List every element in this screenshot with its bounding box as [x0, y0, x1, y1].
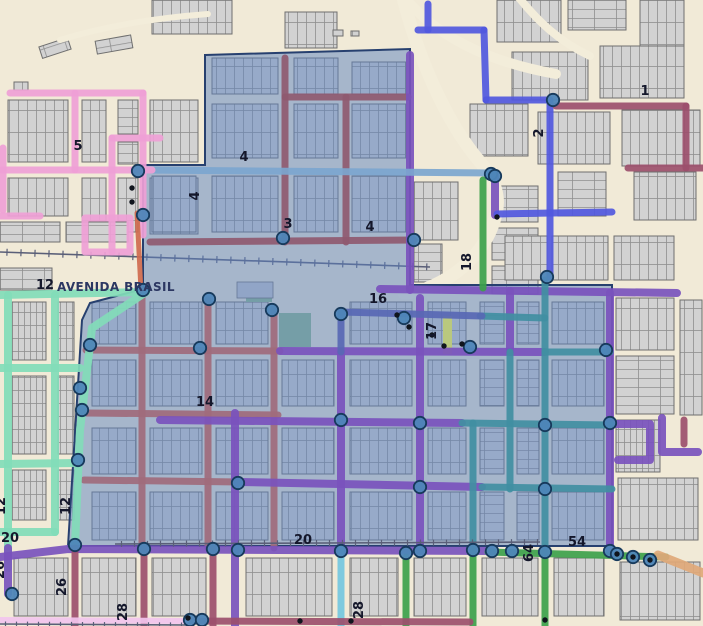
route-node[interactable]: [84, 339, 96, 351]
route-node[interactable]: [232, 477, 244, 489]
city-block: [66, 222, 128, 242]
route-purple-20-segment[interactable]: [280, 351, 545, 352]
route-node[interactable]: [76, 404, 88, 416]
stop-marker: [459, 341, 464, 346]
city-block: [568, 0, 626, 30]
route-node[interactable]: [138, 543, 150, 555]
route-node[interactable]: [232, 544, 244, 556]
route-node[interactable]: [277, 232, 289, 244]
route-number-label: 28: [352, 601, 367, 619]
route-node[interactable]: [398, 312, 410, 324]
route-number-label: 16: [369, 292, 387, 307]
route-node[interactable]: [414, 481, 426, 493]
city-block: [554, 558, 604, 616]
route-number-label: 28: [116, 603, 131, 621]
city-block: [616, 298, 674, 350]
route-rose-14-segment[interactable]: [86, 350, 280, 351]
stop-marker: [297, 618, 302, 623]
stop-marker: [129, 185, 134, 190]
route-mint-12-segment[interactable]: [0, 463, 78, 464]
route-teal-grid-segment[interactable]: [480, 316, 545, 318]
route-node[interactable]: [414, 545, 426, 557]
city-block: [8, 178, 68, 216]
city-block: [333, 30, 343, 36]
route-node[interactable]: [539, 419, 551, 431]
city-block: [12, 302, 46, 360]
stop-marker: [441, 343, 446, 348]
stop-marker: [406, 324, 411, 329]
route-number-label: 12: [0, 497, 9, 515]
route-node[interactable]: [467, 544, 479, 556]
stop-marker: [647, 557, 652, 562]
stop-marker: [542, 617, 547, 622]
route-node[interactable]: [207, 543, 219, 555]
route-node[interactable]: [489, 170, 501, 182]
route-number-label: 4: [188, 191, 203, 200]
route-number-label: 4: [365, 220, 374, 235]
city-block: [82, 100, 106, 162]
city-block: [8, 100, 68, 162]
route-node[interactable]: [600, 344, 612, 356]
route-number-label: 1: [640, 84, 649, 99]
stop-marker: [494, 214, 499, 219]
city-block: [58, 376, 74, 454]
city-block: [614, 236, 674, 280]
city-block: [12, 376, 46, 454]
route-number-label: 14: [196, 395, 214, 410]
route-node[interactable]: [414, 417, 426, 429]
route-node[interactable]: [539, 546, 551, 558]
city-block: [152, 558, 206, 616]
route-purple-20-segment[interactable]: [662, 418, 698, 452]
route-number-label: 4: [239, 150, 248, 165]
route-teal-grid-segment[interactable]: [462, 423, 612, 425]
route-node[interactable]: [604, 417, 616, 429]
city-block: [285, 12, 337, 48]
route-node[interactable]: [486, 545, 498, 557]
route-node[interactable]: [184, 614, 196, 626]
route-node[interactable]: [137, 209, 149, 221]
city-block: [680, 300, 702, 415]
route-maroon-1-26-28-segment[interactable]: [186, 621, 470, 622]
city-block: [351, 31, 359, 36]
route-node[interactable]: [408, 234, 420, 246]
route-node[interactable]: [194, 342, 206, 354]
route-node[interactable]: [72, 454, 84, 466]
city-block: [0, 222, 60, 242]
city-block: [118, 100, 138, 134]
city-block: [414, 558, 466, 616]
route-number-label: 26: [0, 561, 8, 579]
map-viewport[interactable]: 5444312121212181617142020262628285464AVE…: [0, 0, 703, 626]
route-number-label: 12: [36, 278, 54, 293]
route-number-label: 26: [55, 578, 70, 596]
city-block: [150, 100, 198, 162]
route-lightpink-segment[interactable]: [0, 620, 186, 621]
route-number-label: 54: [568, 535, 586, 550]
route-node[interactable]: [541, 271, 553, 283]
route-blue-2-segment[interactable]: [497, 212, 612, 214]
route-number-label: 5: [73, 139, 82, 154]
route-number-label: 2: [532, 128, 547, 137]
route-number-label: 20: [1, 531, 19, 546]
route-rose-14-segment[interactable]: [84, 480, 240, 482]
stop-marker: [614, 551, 619, 556]
route-node[interactable]: [335, 414, 347, 426]
route-number-label: 20: [294, 533, 312, 548]
route-node[interactable]: [196, 614, 208, 626]
stop-marker: [185, 615, 190, 620]
city-block: [616, 356, 674, 414]
map-canvas[interactable]: 5444312121212181617142020262628285464AVE…: [0, 0, 703, 626]
route-node[interactable]: [547, 94, 559, 106]
route-node[interactable]: [464, 341, 476, 353]
route-number-label: 17: [425, 322, 440, 340]
city-block: [640, 0, 684, 46]
city-block: [14, 82, 28, 90]
city-block: [552, 236, 608, 280]
route-node[interactable]: [400, 547, 412, 559]
route-node[interactable]: [539, 483, 551, 495]
route-purple-20-segment[interactable]: [380, 289, 677, 293]
route-node[interactable]: [506, 545, 518, 557]
stop-marker: [129, 199, 134, 204]
city-block: [634, 172, 696, 220]
route-blueviolet-16-segment[interactable]: [341, 312, 482, 316]
route-node[interactable]: [74, 382, 86, 394]
route-node[interactable]: [335, 545, 347, 557]
city-block: [470, 104, 528, 156]
city-block: [482, 558, 538, 616]
route-blue-2-segment[interactable]: [484, 30, 486, 100]
city-block: [414, 182, 458, 240]
route-node[interactable]: [335, 308, 347, 320]
stop-marker: [630, 554, 635, 559]
route-number-label: 3: [283, 217, 292, 232]
route-steelblue-4: [143, 170, 492, 173]
route-node[interactable]: [203, 293, 215, 305]
city-block: [12, 470, 46, 520]
route-number-label: 64: [522, 544, 537, 562]
route-number-label: 12: [59, 497, 74, 515]
route-node[interactable]: [6, 588, 18, 600]
route-node[interactable]: [132, 165, 144, 177]
city-block: [246, 558, 332, 616]
route-purple-20-segment[interactable]: [240, 482, 482, 487]
street-name-label: AVENIDA BRASIL: [57, 280, 175, 294]
route-node[interactable]: [69, 539, 81, 551]
city-block: [58, 302, 74, 360]
stop-marker: [394, 312, 399, 317]
route-number-label: 18: [460, 253, 475, 271]
city-block: [618, 478, 698, 540]
city-block: [118, 142, 138, 164]
route-lightpink: [0, 620, 186, 621]
route-steelblue-4-segment[interactable]: [143, 170, 492, 173]
route-node[interactable]: [266, 304, 278, 316]
route-rose-14-segment[interactable]: [86, 413, 278, 415]
city-block: [505, 236, 547, 280]
city-block: [95, 35, 133, 54]
